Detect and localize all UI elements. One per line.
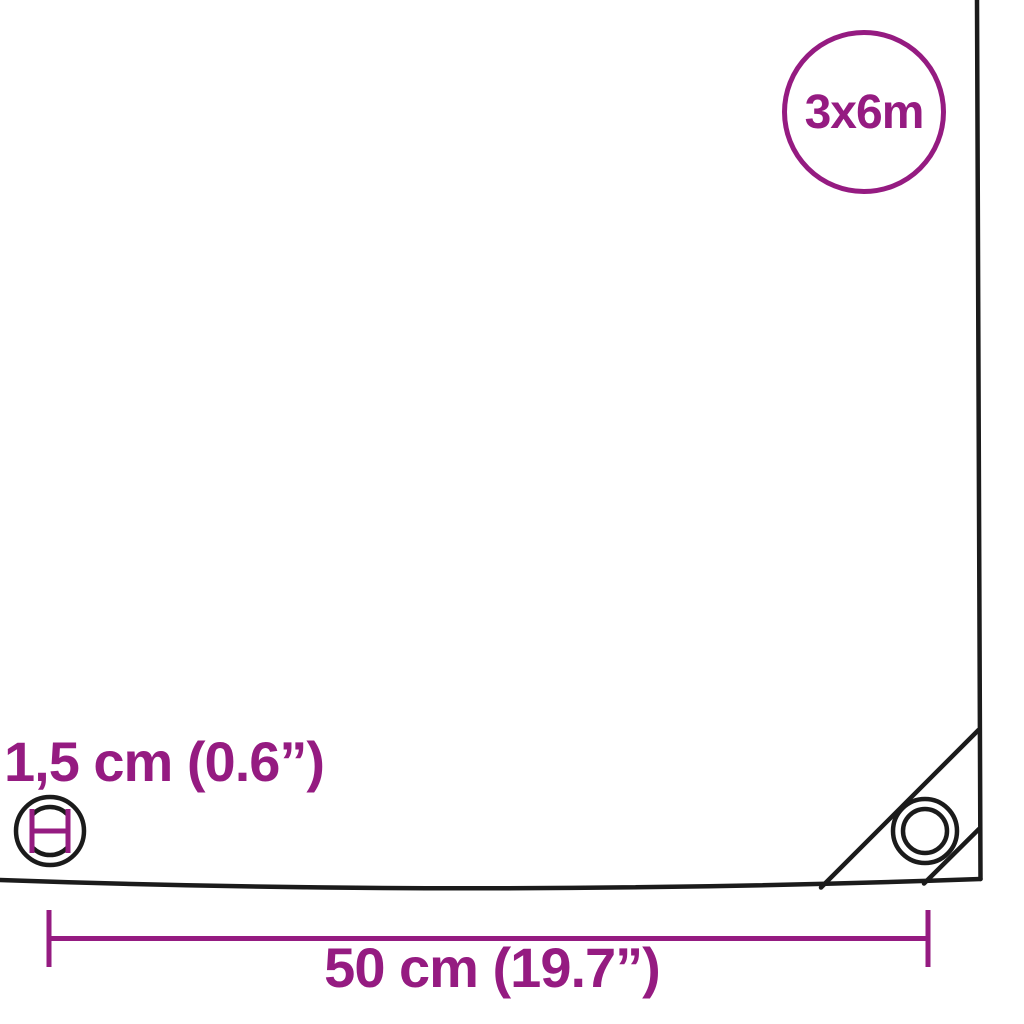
eyelet-inner-ring-top-arc <box>33 807 67 814</box>
size-badge: 3x6m <box>782 30 946 194</box>
eyelet-icon <box>16 797 84 865</box>
corner-fold-seam-line <box>924 829 979 884</box>
tarpaulin-bottom-edge-line <box>0 879 981 888</box>
eyelet-inner-ring-bottom-arc <box>33 848 67 855</box>
eyelet-spacing-label: 50 cm (19.7”) <box>324 940 660 996</box>
size-badge-label: 3x6m <box>805 85 924 140</box>
eyelet-diameter-label: 1,5 cm (0.6”) <box>4 734 324 790</box>
corner-eyelet-icon <box>893 799 957 863</box>
eyelet-diameter-marker-icon <box>32 809 68 853</box>
tarpaulin-right-edge-line <box>977 0 981 879</box>
corner-eyelet-inner-ring <box>903 809 947 853</box>
product-diagram-canvas: 3x6m 1,5 cm (0.6”) 50 cm (19.7”) <box>0 0 1024 1024</box>
